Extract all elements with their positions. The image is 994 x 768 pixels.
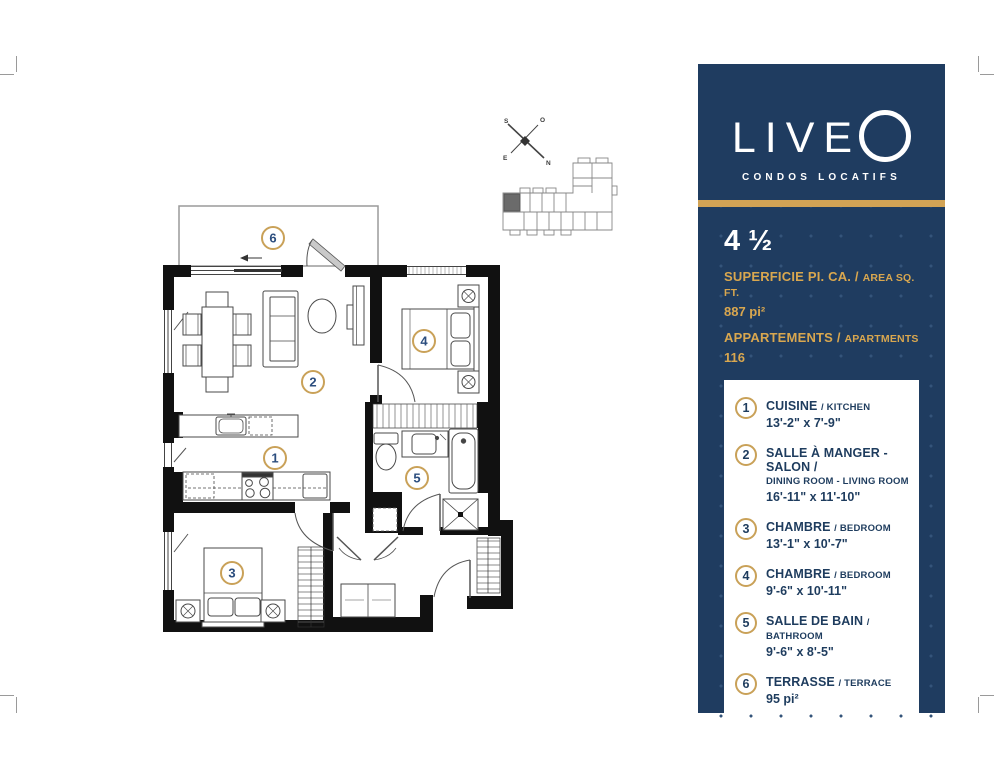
bathroom-vanity-icon [402, 431, 448, 457]
legend-item-bathroom: 5 SALLE DE BAIN / BATHROOM 9'-6" x 8'-5" [735, 612, 911, 659]
room-badge-bedroom3: 3 [221, 562, 243, 584]
legend-item-kitchen: 1 CUISINE / KITCHEN 13'-2" x 7'-9" [735, 397, 911, 430]
legend-dims: 16'-11" x 11'-10" [766, 490, 911, 504]
svg-text:2: 2 [309, 375, 316, 390]
dining-table-icon [183, 292, 251, 392]
area-label: SUPERFICIE PI. CA. / AREA SQ. FT. [724, 269, 919, 299]
entry-bench-icon [341, 584, 395, 617]
building-key-map [503, 158, 617, 235]
legend-item-bedroom3: 3 CHAMBRE / BEDROOM 13'-1" x 10'-7" [735, 518, 911, 551]
svg-text:1: 1 [271, 451, 278, 466]
legend-badge: 1 [735, 397, 757, 419]
info-panel: LIVE CONDOS LOCATIFS 4 ½ SUPERFICIE PI. … [698, 64, 945, 713]
legend-item-terrace: 6 TERRASSE / TERRACE 95 pi² [735, 673, 911, 706]
svg-text:N: N [546, 160, 551, 167]
logo-o-ring-icon [859, 110, 911, 162]
room-badge-kitchen: 1 [264, 447, 286, 469]
sofa-icon [263, 291, 298, 367]
legend-badge: 2 [735, 444, 757, 466]
room-badge-bedroom4: 4 [413, 330, 435, 352]
floorplan-drawing: 1 2 3 4 5 6 S O E N [0, 0, 690, 768]
floorplan-brochure-page: { "branding": { "logo": "LIVE", "tagline… [0, 0, 994, 768]
legend-badge: 5 [735, 612, 757, 634]
legend-badge: 6 [735, 673, 757, 695]
shower-icon [443, 499, 478, 530]
legend-badge: 3 [735, 518, 757, 540]
svg-text:6: 6 [269, 231, 276, 246]
brand-header: LIVE CONDOS LOCATIFS [698, 64, 945, 183]
legend-item-living: 2 SALLE À MANGER - SALON /DINING ROOM - … [735, 444, 911, 504]
legend-dims: 13'-2" x 7'-9" [766, 416, 870, 430]
kitchen-counter-icon [179, 414, 298, 437]
svg-text:S: S [504, 118, 509, 125]
bathtub-icon [449, 429, 478, 493]
tv-console-icon [347, 286, 364, 345]
room-badge-terrace: 6 [262, 227, 284, 249]
unit-type: 4 ½ [724, 225, 919, 258]
crop-mark [980, 74, 994, 75]
apartments-label: APPARTEMENTS / APARTMENTS [724, 330, 919, 345]
legend-dims: 9'-6" x 8'-5" [766, 645, 911, 659]
legend-dims: 13'-1" x 10'-7" [766, 537, 891, 551]
linen-closet-icon [373, 508, 397, 531]
svg-text:4: 4 [420, 334, 428, 349]
logo-text: LIVE [732, 114, 861, 162]
svg-text:3: 3 [228, 566, 235, 581]
legend-item-bedroom4: 4 CHAMBRE / BEDROOM 9'-6" x 10'-11" [735, 565, 911, 598]
bed3-icon [202, 548, 264, 627]
area-value: 887 pi² [724, 304, 919, 319]
room-legend-card: 1 CUISINE / KITCHEN 13'-2" x 7'-9" 2 SAL… [724, 380, 919, 714]
legend-dims: 95 pi² [766, 692, 891, 706]
unit-location-highlight [504, 194, 520, 211]
room-badge-bathroom: 5 [406, 467, 428, 489]
side-table-icon [308, 299, 336, 333]
legend-dims: 9'-6" x 10'-11" [766, 584, 891, 598]
logo: LIVE [698, 114, 945, 163]
compass-icon: S O E N [503, 117, 551, 167]
room-badge-living: 2 [302, 371, 324, 393]
unit-info: 4 ½ SUPERFICIE PI. CA. / AREA SQ. FT. 88… [698, 207, 945, 730]
gold-divider [698, 200, 945, 207]
crop-mark [978, 56, 979, 72]
kitchen-stove-icon [183, 472, 330, 500]
svg-text:E: E [503, 155, 508, 162]
apartments-value: 116 [724, 350, 919, 365]
toilet-icon [374, 433, 398, 470]
logo-tagline: CONDOS LOCATIFS [698, 172, 945, 183]
crop-mark [980, 695, 994, 696]
legend-badge: 4 [735, 565, 757, 587]
svg-text:5: 5 [413, 471, 420, 486]
svg-text:O: O [540, 117, 545, 124]
crop-mark [978, 697, 979, 713]
